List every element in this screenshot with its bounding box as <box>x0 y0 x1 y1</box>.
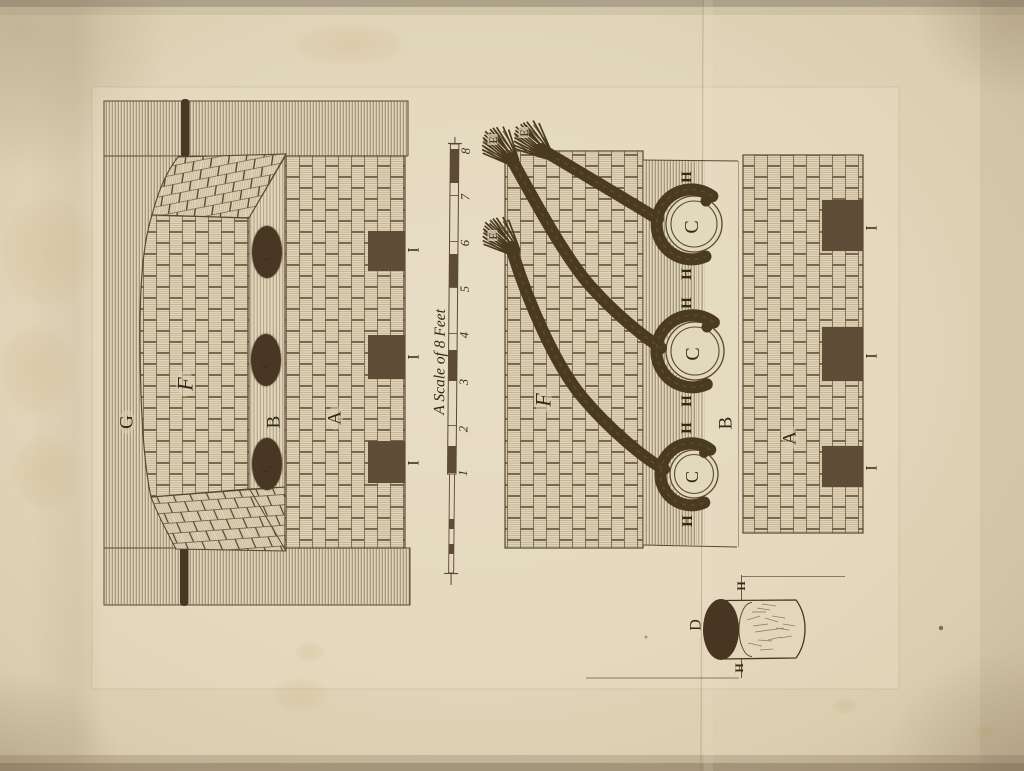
svg-text:2: 2 <box>456 426 470 432</box>
svg-text:H: H <box>679 171 695 183</box>
svg-text:H: H <box>679 422 695 434</box>
svg-text:A Scale of 8 Feet: A Scale of 8 Feet <box>431 308 449 415</box>
svg-text:C: C <box>261 361 272 368</box>
svg-text:F: F <box>173 377 198 392</box>
svg-text:B: B <box>264 416 285 429</box>
svg-text:1: 1 <box>456 470 470 476</box>
svg-text:G: G <box>117 415 138 429</box>
svg-text:C: C <box>681 220 703 233</box>
svg-text:C: C <box>262 465 273 472</box>
svg-text:6: 6 <box>458 239 472 246</box>
svg-text:I: I <box>864 465 881 470</box>
svg-text:E: E <box>517 129 531 136</box>
svg-text:4: 4 <box>457 332 471 338</box>
svg-text:E: E <box>486 136 500 143</box>
svg-text:B: B <box>716 417 737 430</box>
svg-text:I: I <box>406 460 423 465</box>
svg-text:C: C <box>262 253 273 260</box>
svg-text:H: H <box>679 297 695 309</box>
svg-text:H: H <box>679 395 695 407</box>
svg-text:H: H <box>679 268 695 280</box>
svg-text:E: E <box>486 232 500 239</box>
svg-text:C: C <box>682 471 702 483</box>
svg-text:I: I <box>406 354 423 359</box>
svg-text:I: I <box>864 353 881 358</box>
svg-text:8: 8 <box>459 147 473 154</box>
svg-text:D: D <box>688 619 705 631</box>
svg-text:F: F <box>531 393 556 408</box>
svg-text:H: H <box>680 515 696 527</box>
svg-text:3: 3 <box>457 379 471 386</box>
svg-text:H: H <box>734 581 748 591</box>
svg-text:A: A <box>780 431 801 445</box>
svg-text:7: 7 <box>458 193 472 200</box>
svg-text:A: A <box>325 411 346 425</box>
svg-text:5: 5 <box>458 286 472 292</box>
svg-text:H: H <box>732 663 746 673</box>
svg-text:C: C <box>682 347 704 360</box>
svg-text:I: I <box>864 225 881 230</box>
svg-text:I: I <box>406 247 423 252</box>
